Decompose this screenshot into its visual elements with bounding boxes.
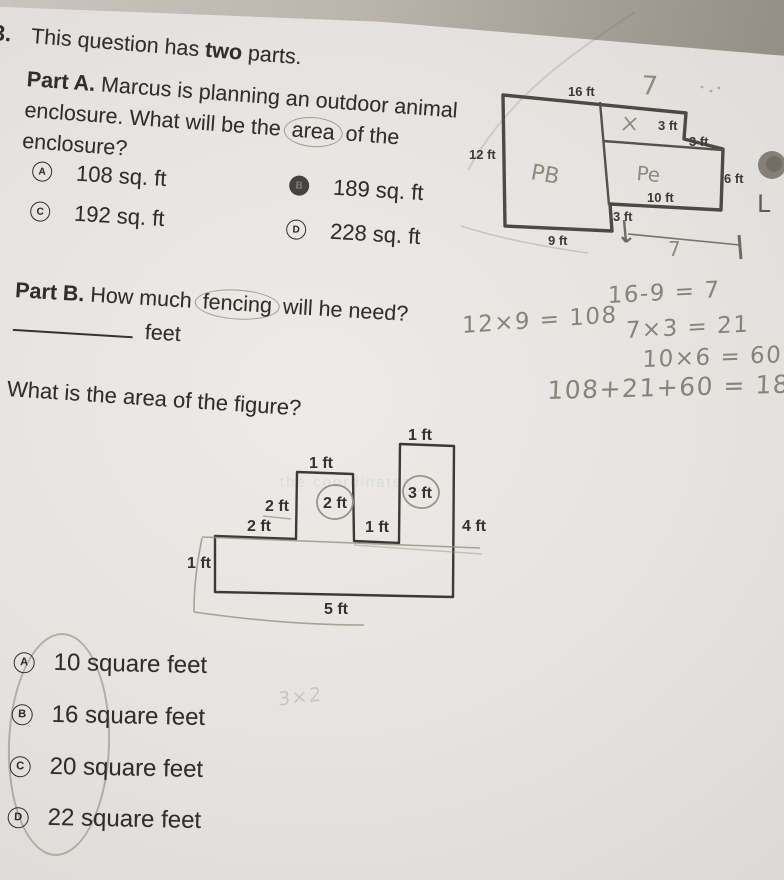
answer-unit: feet: [144, 320, 181, 346]
option-bubble-b-filled: B: [289, 175, 310, 196]
option-bubble-a: A: [32, 161, 53, 182]
fig-dim-base-bottom: 5 ft: [324, 601, 349, 618]
pencil-tick-right: [739, 235, 741, 259]
part-b-prompt: Part B. How much fencing will he need? f…: [12, 278, 409, 361]
handwritten-seven-top: 7: [641, 71, 659, 102]
option-label: 16 square feet: [51, 701, 205, 732]
pencil-line-left: [194, 538, 202, 612]
area-option-a: A 10 square feet: [13, 648, 207, 680]
fig-dim-right-tower-inner: 3 ft: [408, 485, 433, 502]
option-label: 189 sq. ft: [332, 175, 424, 206]
handwritten-work-line-4: 10×6 = 60: [642, 342, 783, 373]
enclosure-inner-wall-vertical: [600, 102, 609, 205]
pencil-dot: [710, 90, 713, 93]
option-bubble-c: C: [9, 755, 30, 776]
option-label: 22 square feet: [47, 804, 201, 835]
fig-dim-base-top-left: 2 ft: [247, 518, 272, 535]
handwritten-scribble-left-room: PB: [529, 160, 561, 190]
area-option-d: D 22 square feet: [7, 803, 201, 835]
step-figure-diagram: the coordinates 1 ft 1 ft 2 ft 2 ft 3 ft…: [150, 413, 490, 648]
intro-text: This question has two parts.: [30, 24, 302, 69]
dim-left: 12 ft: [469, 147, 496, 162]
pencil-scribble-small-room: [623, 117, 636, 130]
handwritten-work-line-5: 108+21+60 = 189: [547, 369, 784, 405]
part-a-label: Part A.: [26, 67, 96, 96]
enclosure-diagram: 16 ft 12 ft 3 ft 3 ft 6 ft 10 ft 3 ft 9 …: [456, 58, 784, 290]
part-a-option-c: C 192 sq. ft: [29, 198, 165, 232]
dim-top: 16 ft: [568, 84, 595, 99]
part-a-option-d: D 228 sq. ft: [285, 216, 421, 250]
pencil-dot: [718, 87, 721, 90]
option-bubble-d: D: [7, 806, 28, 827]
dim-right-bottom: 10 ft: [647, 190, 674, 205]
worksheet-photo: 3.This question has two parts. Part A. M…: [0, 0, 784, 880]
handwritten-work-line-1: 16-9 = 7: [608, 277, 721, 309]
option-bubble-a: A: [13, 651, 34, 672]
question-number: 3.: [0, 20, 12, 46]
area-option-c: C 20 square feet: [9, 752, 203, 784]
circled-word-area: area: [283, 115, 344, 149]
question-intro: 3.This question has two parts.: [0, 20, 303, 70]
handwritten-scribble-right-room: Pe: [636, 161, 662, 187]
answer-blank-line: [13, 315, 134, 338]
pen-mark-l: L: [757, 190, 771, 218]
handwritten-work-line-3: 7×3 = 21: [626, 312, 750, 345]
handwritten-work-line-2: 12×9 = 108: [462, 302, 618, 339]
fig-dim-base-left: 1 ft: [187, 555, 212, 572]
option-label: 192 sq. ft: [73, 201, 165, 232]
option-label: 228 sq. ft: [329, 219, 421, 250]
fig-dim-left-tower-inner: 2 ft: [323, 495, 348, 512]
option-bubble-d: D: [286, 219, 307, 240]
dim-inner-top: 3 ft: [658, 118, 678, 133]
pencil-line-base-top-2: [354, 545, 482, 554]
fig-dim-left-tower-top: 1 ft: [309, 455, 334, 472]
option-label: 108 sq. ft: [75, 161, 167, 192]
pencil-measure-line: [628, 234, 740, 245]
fig-dim-between-towers: 1 ft: [365, 519, 390, 536]
part-b-label: Part B.: [15, 278, 86, 306]
option-label: 10 square feet: [53, 649, 207, 680]
area-option-b: B 16 square feet: [11, 700, 205, 732]
option-bubble-c: C: [30, 201, 51, 222]
circled-word-fencing: fencing: [194, 287, 281, 322]
fig-dim-right-side: 4 ft: [462, 518, 487, 535]
option-label: 20 square feet: [49, 753, 203, 784]
pen-blob-core: [766, 156, 782, 172]
pencil-line-base-top: [202, 537, 480, 548]
faint-pencil-scribble: 3×2: [278, 683, 323, 711]
fig-dim-left-tower-side: 2 ft: [265, 498, 290, 515]
pencil-dot: [701, 86, 704, 89]
option-bubble-b: B: [11, 703, 32, 724]
fig-dim-right-tower-top: 1 ft: [408, 427, 433, 444]
handwritten-seven-bottom: 7: [668, 237, 681, 261]
dim-right-step: 3 ft: [689, 134, 709, 149]
dim-bottom: 9 ft: [548, 233, 568, 248]
dim-right-side: 6 ft: [724, 171, 744, 186]
